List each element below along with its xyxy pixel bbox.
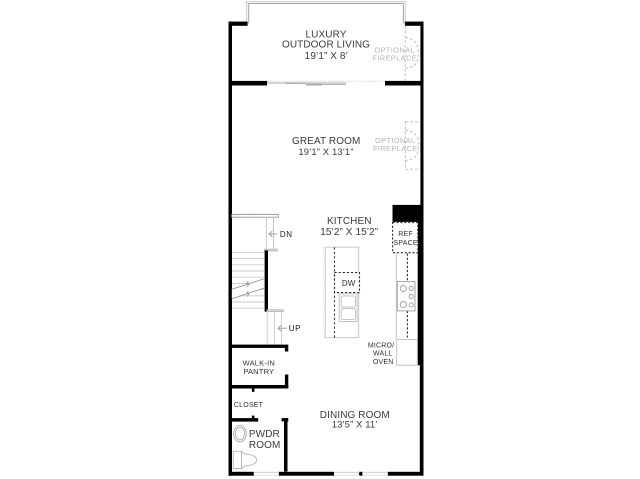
svg-text:OUTDOOR LIVING: OUTDOOR LIVING bbox=[282, 40, 370, 51]
svg-text:WALL: WALL bbox=[373, 351, 393, 358]
svg-text:FIREPLACE: FIREPLACE bbox=[372, 54, 417, 63]
svg-text:KITCHEN: KITCHEN bbox=[327, 216, 372, 227]
svg-text:CLOSET: CLOSET bbox=[234, 402, 264, 409]
svg-text:19’1” X 13’1”: 19’1” X 13’1” bbox=[298, 147, 353, 158]
svg-text:19’1” X 8’: 19’1” X 8’ bbox=[305, 51, 348, 62]
svg-text:OVEN: OVEN bbox=[373, 359, 394, 366]
svg-text:MICRO/: MICRO/ bbox=[368, 342, 394, 349]
svg-text:DN: DN bbox=[280, 230, 293, 239]
svg-text:DW: DW bbox=[342, 279, 356, 288]
svg-text:13’5” X 11’: 13’5” X 11’ bbox=[332, 420, 378, 431]
svg-text:ROOM: ROOM bbox=[249, 440, 281, 451]
svg-text:PANTRY: PANTRY bbox=[243, 367, 274, 376]
svg-text:SPACE: SPACE bbox=[393, 240, 417, 247]
svg-text:REF: REF bbox=[398, 231, 413, 238]
svg-text:PWDR: PWDR bbox=[249, 429, 280, 440]
svg-text:15’2” X 15’2”: 15’2” X 15’2” bbox=[320, 227, 378, 238]
svg-text:UP: UP bbox=[289, 324, 301, 333]
svg-text:FIREPLACE: FIREPLACE bbox=[373, 144, 418, 153]
svg-text:GREAT ROOM: GREAT ROOM bbox=[292, 136, 360, 147]
